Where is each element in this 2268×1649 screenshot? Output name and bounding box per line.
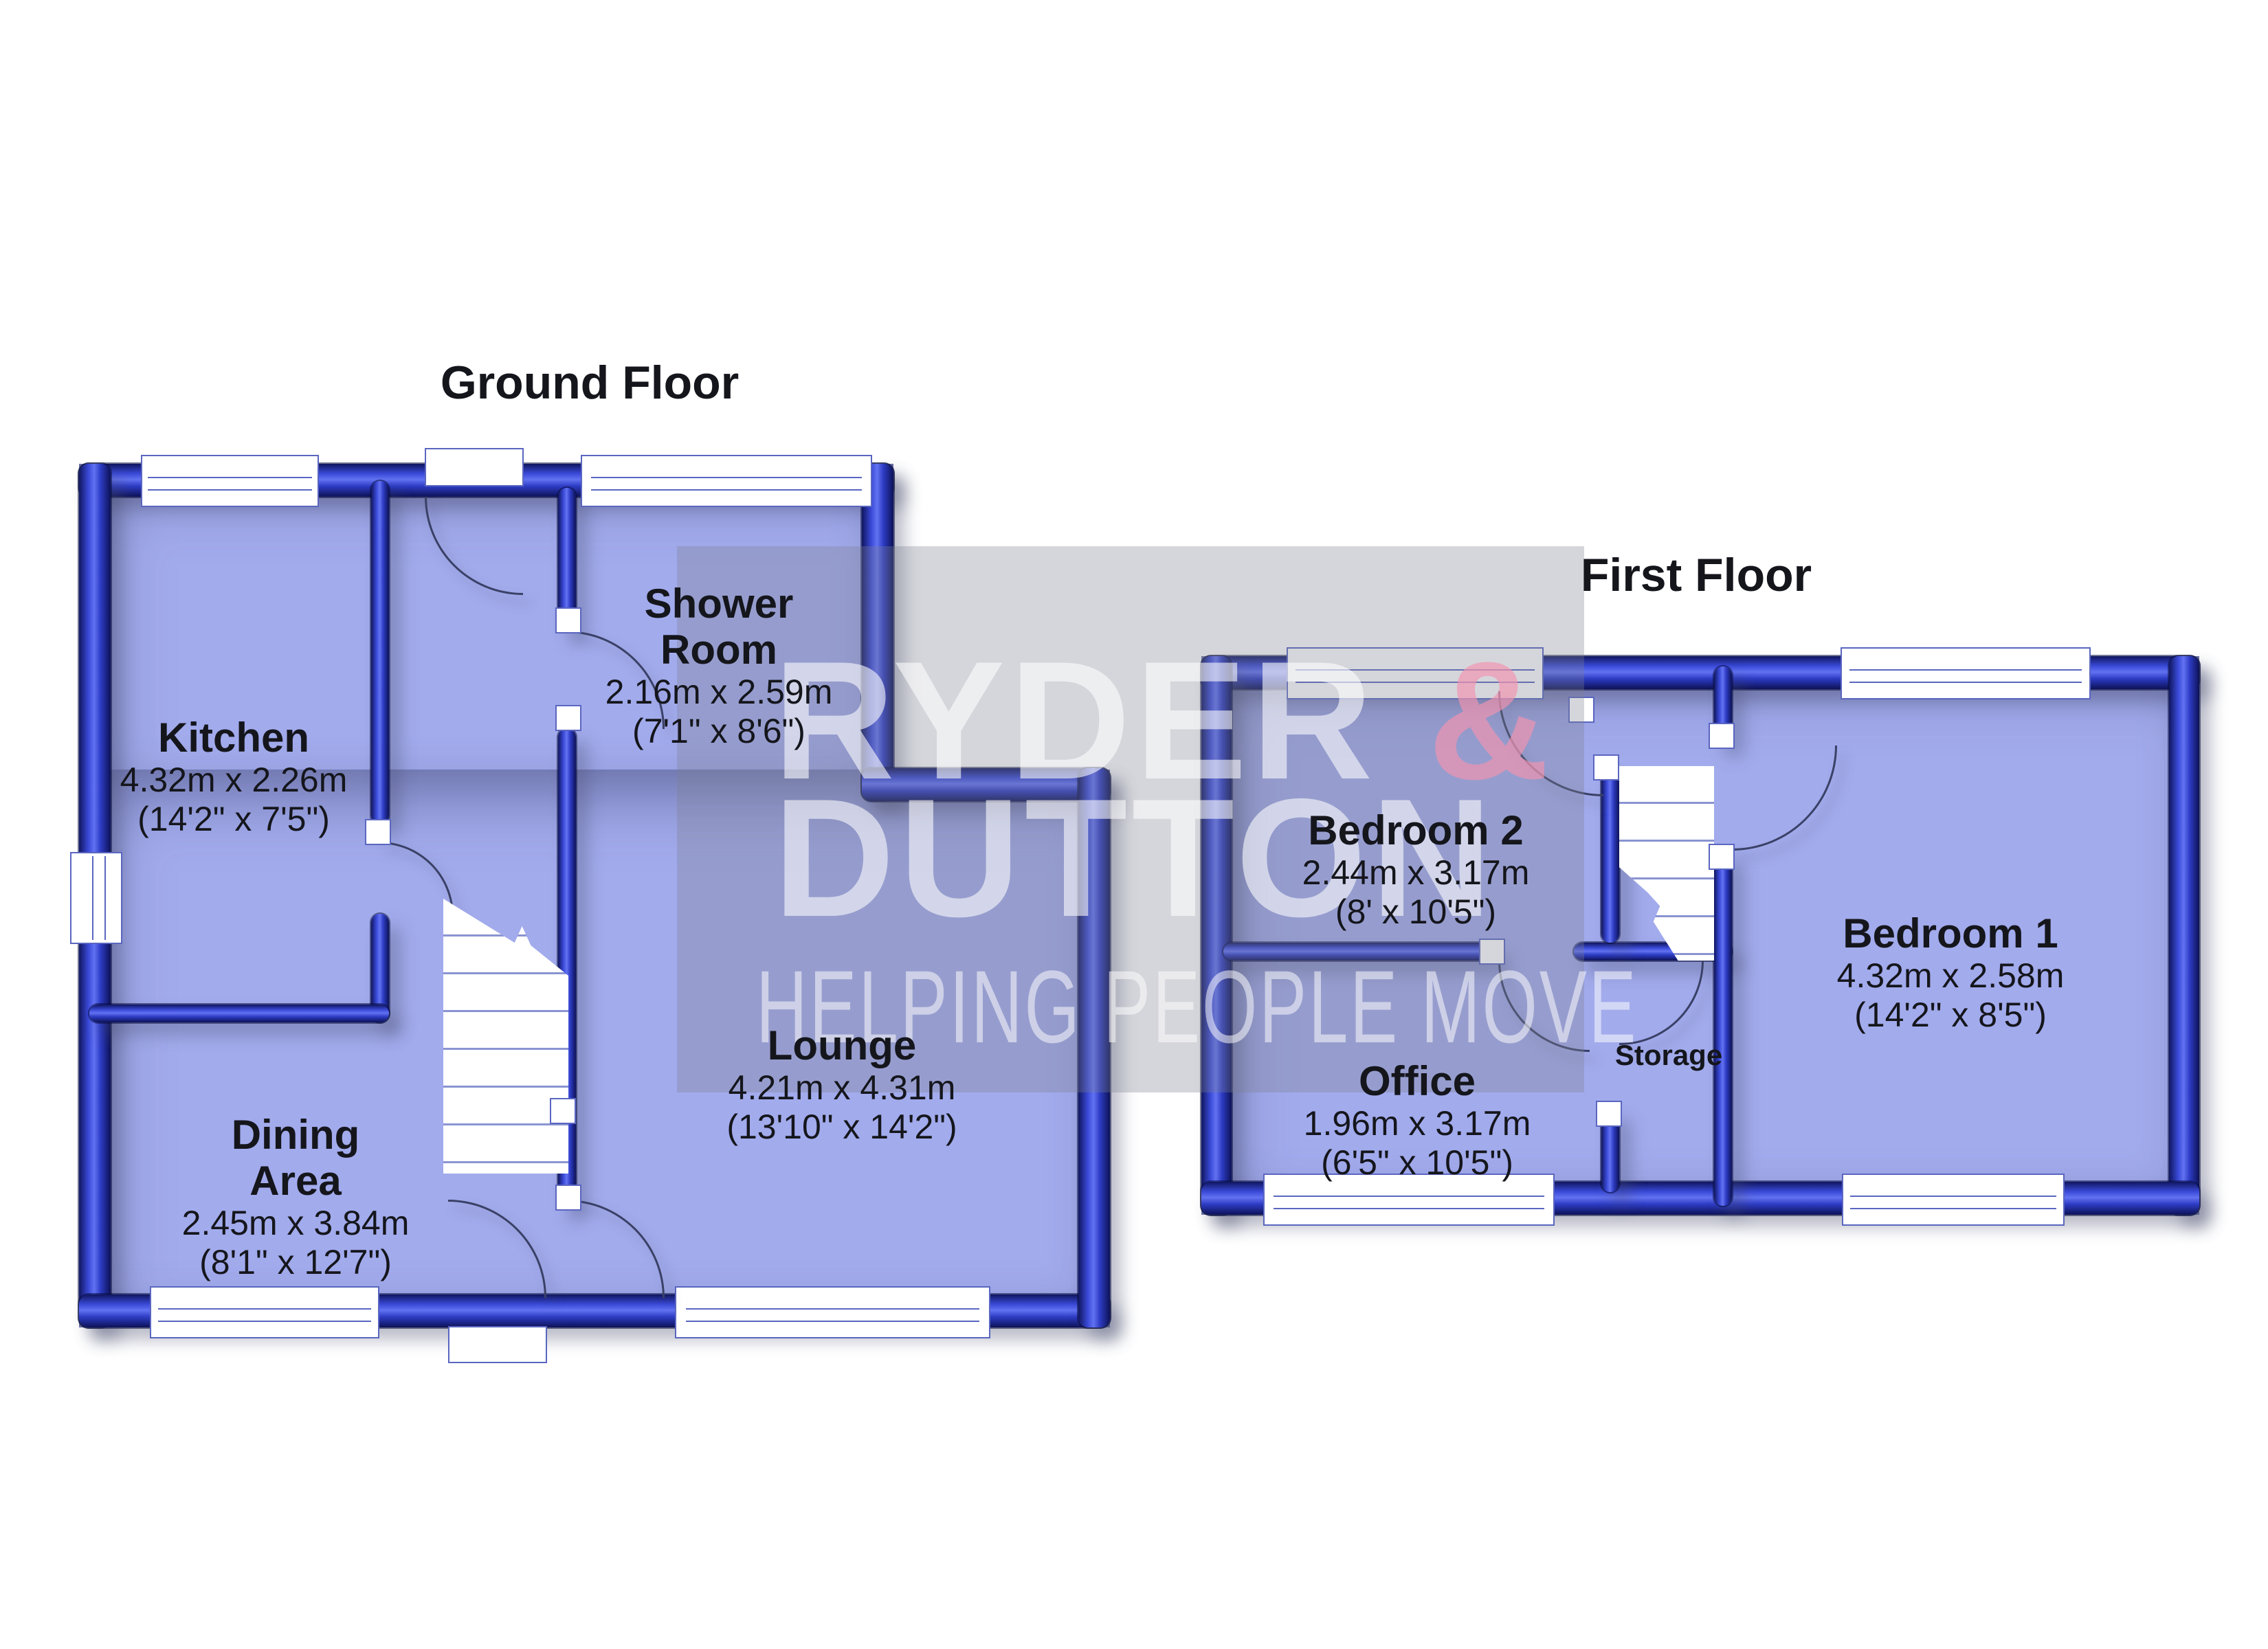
room-dim-metric: 4.32m x 2.26m [120, 761, 348, 800]
window [141, 455, 319, 507]
window [70, 852, 122, 944]
room-dim-imperial: (7'1" x 8'6") [605, 712, 833, 751]
window-pane [1274, 1196, 1545, 1209]
room-label-office: Office 1.96m x 3.17m (6'5" x 10'5") [1304, 1058, 1531, 1182]
room-dim-imperial: (6'5" x 10'5") [1304, 1143, 1531, 1182]
window [1842, 1174, 2065, 1226]
window-pane [148, 477, 313, 491]
first-floor-title: First Floor [1581, 548, 1812, 602]
window-pane [686, 1308, 980, 1322]
wall-segment [2169, 656, 2199, 1215]
room-label-storage: Storage [1615, 1039, 1722, 1072]
window [675, 1286, 990, 1338]
window-pane [1849, 669, 2082, 683]
window-pane [158, 1308, 371, 1322]
door-jamb [1593, 754, 1619, 781]
room-dim-metric: 4.21m x 4.31m [726, 1068, 957, 1108]
room-name: Dining [182, 1112, 410, 1158]
room-name: Area [182, 1158, 410, 1204]
room-dim-metric: 4.32m x 2.58m [1837, 956, 2065, 996]
window-pane [1850, 1196, 2057, 1209]
door-jamb [555, 607, 581, 633]
room-label-lounge: Lounge 4.21m x 4.31m (13'10" x 14'2") [726, 1022, 957, 1147]
room-dim-imperial: (8'1" x 12'7") [182, 1243, 410, 1282]
window [581, 455, 872, 507]
room-label-shower: Shower Room 2.16m x 2.59m (7'1" x 8'6") [605, 581, 833, 751]
room-dim-imperial: (13'10" x 14'2") [726, 1108, 957, 1147]
room-dim-metric: 2.44m x 3.17m [1302, 853, 1530, 893]
room-label-kitchen: Kitchen 4.32m x 2.26m (14'2" x 7'5") [120, 715, 348, 839]
door-jamb [555, 705, 581, 731]
window [150, 1286, 379, 1338]
room-name: Room [605, 627, 833, 673]
door-jamb [365, 819, 391, 845]
ground-floor-title: Ground Floor [441, 356, 739, 410]
door-jamb [1709, 844, 1735, 870]
wall-segment [1714, 849, 1732, 1206]
window [1841, 647, 2091, 699]
room-dim-imperial: (14'2" x 8'5") [1837, 996, 2065, 1035]
wall-segment [1601, 766, 1619, 943]
wall-segment [371, 481, 389, 824]
room-name: Bedroom 1 [1837, 910, 2065, 956]
front-door-leaf [425, 448, 524, 486]
room-name: Kitchen [120, 715, 348, 761]
room-name: Office [1304, 1058, 1531, 1104]
room-label-bedroom1: Bedroom 1 4.32m x 2.58m (14'2" x 8'5") [1837, 910, 2065, 1035]
floorplan-canvas: Ground Floor [0, 0, 2268, 1649]
door-jamb [555, 1185, 581, 1211]
room-name: Lounge [726, 1022, 957, 1068]
room-label-dining: Dining Area 2.45m x 3.84m (8'1" x 12'7") [182, 1112, 410, 1282]
window-pane [591, 477, 863, 491]
door-jamb [1709, 723, 1735, 749]
back-door-leaf [448, 1326, 547, 1363]
window-pane [92, 856, 106, 940]
room-dim-metric: 2.16m x 2.59m [605, 673, 833, 712]
room-label-bedroom2: Bedroom 2 2.44m x 3.17m (8' x 10'5") [1302, 807, 1530, 932]
room-dim-metric: 1.96m x 3.17m [1304, 1104, 1531, 1143]
room-dim-imperial: (14'2" x 7'5") [120, 800, 348, 839]
door-jamb [1596, 1101, 1622, 1127]
wall-segment [89, 1005, 389, 1022]
room-name: Shower [605, 581, 833, 627]
room-name: Bedroom 2 [1302, 807, 1530, 853]
stair-newel [550, 1098, 576, 1124]
room-dim-metric: 2.45m x 3.84m [182, 1204, 410, 1243]
room-dim-imperial: (8' x 10'5") [1302, 893, 1530, 932]
